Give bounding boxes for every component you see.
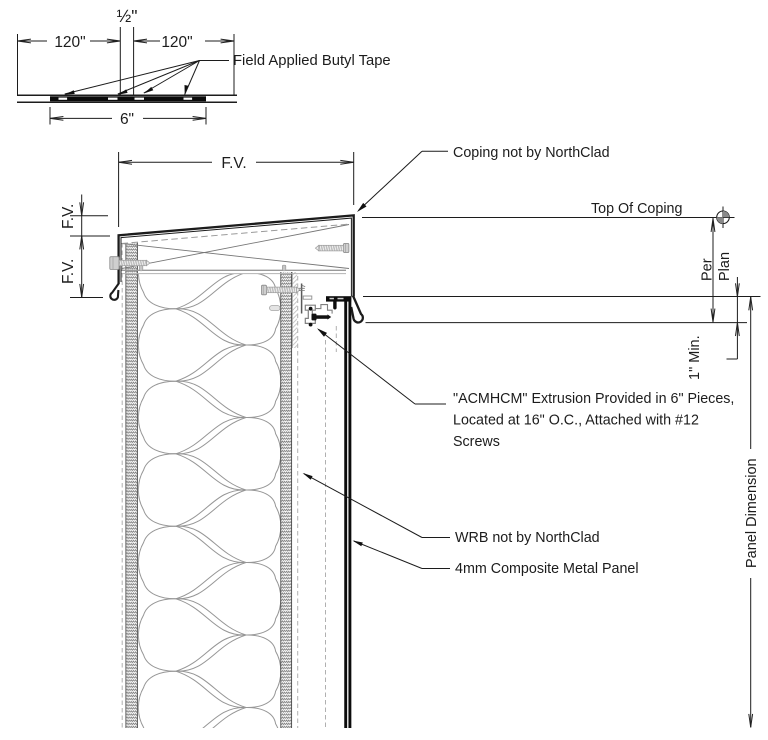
- svg-text:Coping not by NorthClad: Coping not by NorthClad: [453, 145, 610, 161]
- svg-text:Per: Per: [700, 258, 716, 281]
- svg-text:"ACMHCM" Extrusion Provided in: "ACMHCM" Extrusion Provided in 6" Pieces…: [453, 391, 734, 407]
- svg-text:6": 6": [120, 111, 134, 128]
- svg-text:F.V.: F.V.: [221, 155, 246, 172]
- svg-text:Screws: Screws: [453, 434, 500, 450]
- svg-text:1" Min.: 1" Min.: [687, 335, 703, 380]
- svg-text:F.V.: F.V.: [60, 204, 77, 229]
- svg-text:Plan: Plan: [717, 252, 733, 281]
- svg-text:Panel Dimension: Panel Dimension: [744, 458, 760, 568]
- svg-text:F.V.: F.V.: [60, 259, 77, 284]
- svg-text:½": ½": [117, 6, 138, 26]
- svg-text:Field Applied Butyl Tape: Field Applied Butyl Tape: [233, 53, 391, 69]
- svg-text:4mm Composite Metal Panel: 4mm Composite Metal Panel: [455, 561, 639, 577]
- svg-text:120": 120": [54, 34, 85, 51]
- svg-text:WRB not by NorthClad: WRB not by NorthClad: [455, 530, 600, 546]
- svg-text:120": 120": [161, 34, 192, 51]
- svg-text:Located at 16" O.C., Attached: Located at 16" O.C., Attached with #12: [453, 413, 699, 429]
- svg-text:Top Of Coping: Top Of Coping: [591, 201, 682, 217]
